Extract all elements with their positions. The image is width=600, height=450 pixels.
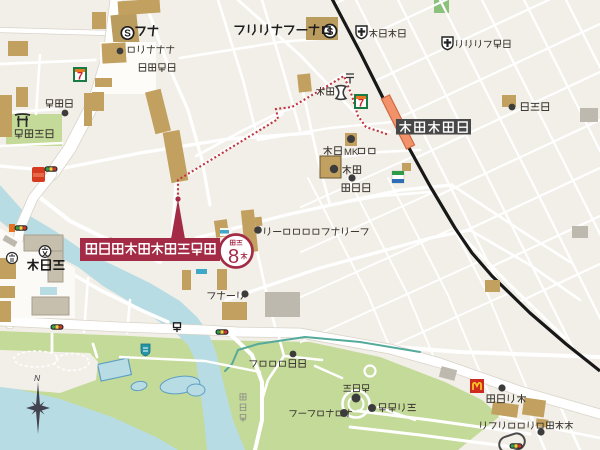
svg-text:S: S (124, 29, 131, 40)
svg-text:N: N (34, 373, 41, 383)
svg-text:7: 7 (77, 71, 83, 83)
svg-text:8: 8 (228, 246, 239, 268)
svg-text:MK: MK (344, 147, 359, 158)
svg-text:7: 7 (358, 98, 364, 110)
